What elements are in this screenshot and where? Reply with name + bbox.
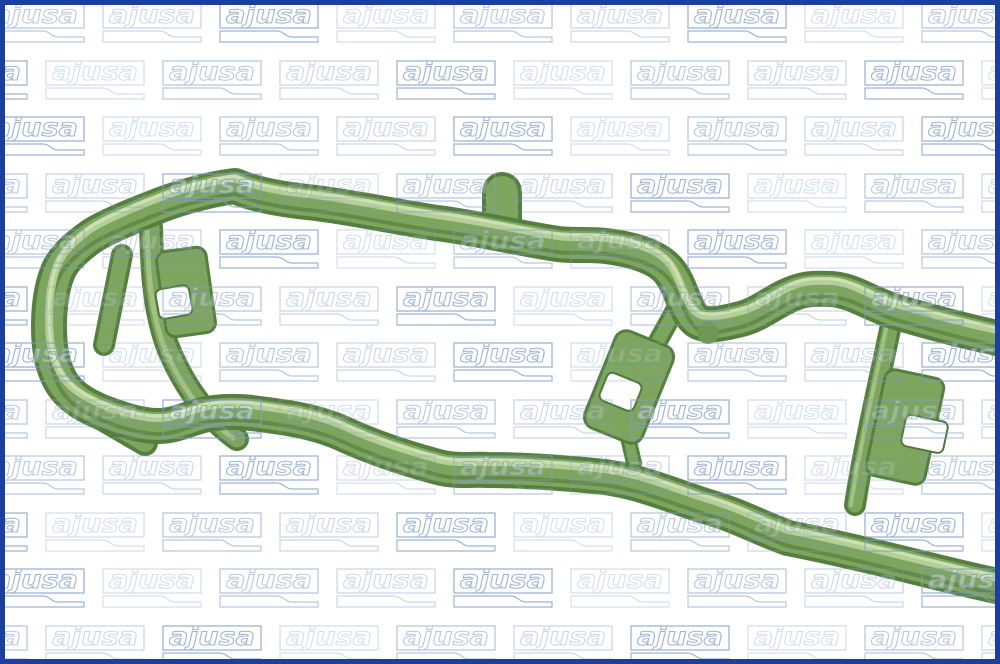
gasket-photo [5, 5, 1000, 664]
product-photo: ajusa ajusa ajusa ajusa ajusa [0, 0, 1000, 664]
